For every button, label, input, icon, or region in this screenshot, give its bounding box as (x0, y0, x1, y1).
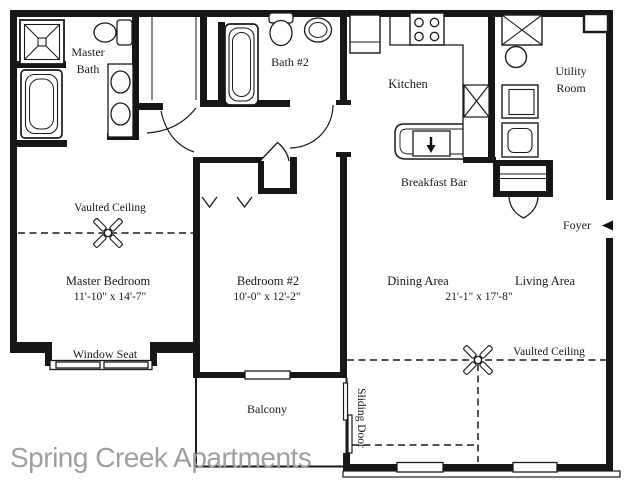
floor-plan: Master Bath Bath #2 Kitchen Utility Room… (0, 0, 640, 480)
foyer-closet-door (509, 197, 538, 218)
bar-sink-icon (413, 131, 450, 156)
water-heater-icon (502, 15, 542, 68)
foyer-closet-shelves (500, 174, 546, 179)
refrigerator-icon (350, 15, 380, 53)
living-vaulted-ceiling-label: Vaulted Ceiling (513, 346, 585, 358)
bedroom2-dimensions: 10'-0" x 12'-2" (233, 291, 300, 303)
ceiling-fan-icon (93, 218, 123, 248)
chase-box (584, 14, 608, 32)
master-vaulted-ceiling-label: Vaulted Ceiling (74, 202, 146, 214)
utility-room-label: Utility (555, 64, 586, 78)
window (245, 371, 290, 379)
bath2-door-swing (290, 105, 333, 148)
bath2-label: Bath #2 (271, 55, 309, 69)
bathtub2-icon (225, 24, 258, 105)
sliding-door-panels (344, 383, 353, 453)
breakfast-bar-label: Breakfast Bar (401, 175, 467, 189)
toilet2-icon (269, 13, 293, 46)
sliding-door-label: Sliding Door (355, 388, 367, 448)
double-sink-vanity-icon (108, 64, 133, 137)
living-area-label: Living Area (515, 274, 576, 288)
foyer-label: Foyer (563, 218, 591, 232)
bedroom2-door (260, 143, 289, 162)
master-bedroom-door-swing (161, 111, 194, 152)
floor-plan-page: Master Bath Bath #2 Kitchen Utility Room… (0, 0, 640, 480)
porch-edge (343, 471, 620, 477)
window (56, 362, 100, 368)
watermark-title: Spring Creek Apartments (10, 442, 311, 473)
master-bedroom-label: Master Bedroom (66, 274, 151, 288)
master-bedroom-dimensions: 11'-10" x 14'-7" (74, 291, 147, 303)
walk-in-closet-rods (152, 12, 196, 100)
closet-bifold-marks (202, 197, 252, 207)
window-seat-label: Window Seat (73, 347, 138, 361)
dining-area-label: Dining Area (387, 274, 449, 288)
bedroom2-label: Bedroom #2 (237, 274, 299, 288)
toilet-icon (94, 20, 132, 45)
window (104, 362, 148, 368)
dryer-icon (502, 123, 538, 157)
balcony-label: Balcony (247, 402, 287, 416)
utility-room-label: Room (556, 81, 586, 95)
sink-icon (305, 18, 332, 42)
master-bath-label: Master (71, 45, 104, 59)
stove-icon (410, 13, 444, 45)
closet-door-swing (147, 108, 196, 133)
washer-icon (502, 85, 538, 118)
master-bath-label: Bath (77, 62, 100, 76)
entry-arrow-icon (602, 221, 613, 231)
bathtub-icon (21, 70, 62, 138)
kitchen-label: Kitchen (388, 77, 428, 91)
pantry-icon (464, 85, 489, 117)
window (397, 463, 443, 473)
shower-icon (20, 20, 64, 64)
window (513, 463, 557, 473)
living-dimensions: 21'-1" x 17'-8" (445, 291, 512, 303)
